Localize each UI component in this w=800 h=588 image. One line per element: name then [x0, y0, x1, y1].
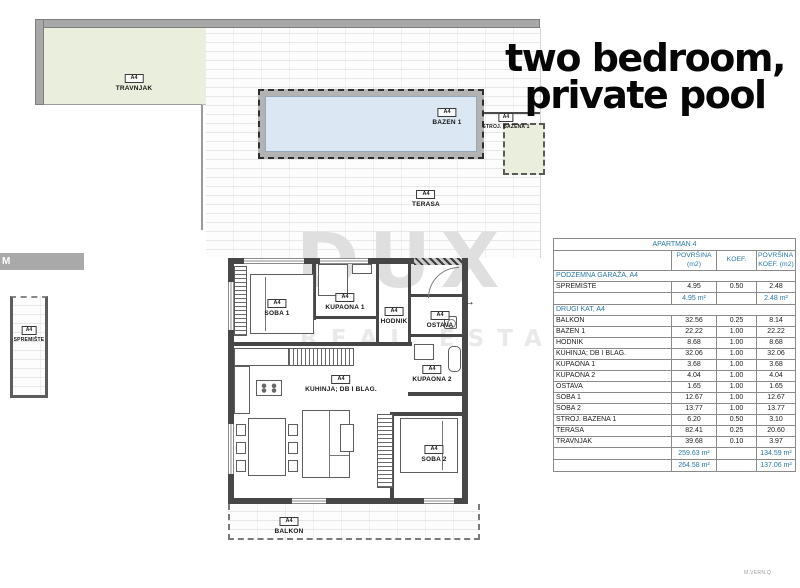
table-row: SPREMIŠTE 4.95 0.50 2.48: [554, 282, 796, 293]
unit-tag: A4: [422, 365, 441, 374]
lawn-bottom-line: [44, 104, 202, 105]
wardrobe-soba1: [234, 266, 247, 336]
table-row: KUPAONA 2 4.04 1.00 4.04: [554, 371, 796, 382]
entry-arrow-icon: →: [464, 297, 475, 307]
apartment-area-table: APARTMAN 4 POVRŠINA (m2) KOEF. POVRŠINA …: [553, 238, 796, 472]
col-header-area: POVRŠINA (m2): [672, 251, 717, 271]
chair: [236, 442, 246, 454]
side-band-label: M: [2, 256, 10, 267]
site-boundary-wall-top: [35, 19, 540, 28]
pool-machinery-area: [503, 123, 545, 175]
table-header-row: POVRŠINA (m2) KOEF. POVRŠINA S KOEF. (m2…: [554, 251, 796, 271]
corner-note: M.VERN.Q: [744, 570, 771, 576]
col-header-koef: KOEF.: [717, 251, 757, 271]
unit-tag: A4: [279, 517, 298, 526]
coffee-table: [340, 424, 354, 452]
unit-tag: A4: [124, 74, 143, 83]
wall-ostava-bottom: [408, 334, 464, 337]
table-row: SOBA 2 13.77 1.00 13.77: [554, 404, 796, 415]
section-header-row: DRUGI KAT, A4: [554, 305, 796, 316]
dining-table: [248, 418, 286, 476]
table-row: KUPAONA 1 3.68 1.00 3.68: [554, 360, 796, 371]
room-label-kuhinja: A4 KUHINJA; DB I BLAG.: [305, 367, 377, 393]
cooktop-burners: [259, 383, 279, 393]
unit-tag: A4: [424, 445, 443, 454]
chair: [288, 442, 298, 454]
unit-tag: A4: [335, 293, 354, 302]
unit-tag: A4: [499, 113, 513, 122]
chair: [236, 460, 246, 472]
page-title: two bedroom, private pool: [492, 40, 798, 114]
balcony-area: [228, 504, 480, 540]
area-table: APARTMAN 4 POVRŠINA (m2) KOEF. POVRŠINA …: [553, 238, 796, 472]
kitchen-counter-left: [234, 366, 250, 414]
section-header-row: PODZEMNA GARAŽA, A4: [554, 271, 796, 282]
wardrobe-hatch: [377, 414, 393, 488]
chair: [288, 424, 298, 436]
table-row: HODNIK 8.68 1.00 8.68: [554, 338, 796, 349]
table-row: KUHINJA; DB I BLAG. 32.06 1.00 32.06: [554, 349, 796, 360]
unit-tag: A4: [416, 190, 435, 199]
storage-room-plan: [10, 296, 48, 398]
garden-edge-line: [201, 105, 203, 230]
room-label-soba2: A4 SOBA 2: [421, 437, 446, 463]
unit-tag: A4: [384, 307, 403, 316]
room-label-ostava: A4 OSTAVA: [427, 303, 454, 329]
room-label-balkon: A4 BALKON: [274, 509, 303, 535]
subtotal-row: 259.63 m² 134.59 m²: [554, 448, 796, 460]
page-title-line2: private pool: [492, 77, 798, 114]
wall-kupaona1-bottom: [312, 316, 379, 319]
wall-soba2-top: [390, 412, 464, 416]
unit-tag: A4: [267, 299, 286, 308]
wall-top-hatched: [414, 258, 468, 265]
total-row: 264.58 m² 137.06 m²: [554, 460, 796, 472]
room-label-bazen1: A4 BAZEN 1: [432, 100, 461, 126]
room-label-travnjak: A4 TRAVNJAK: [116, 66, 153, 92]
subtotal-row: 4.95 m² 2.48 m²: [554, 293, 796, 305]
unit-tag: A4: [22, 326, 36, 335]
sofa-seat: [303, 411, 330, 477]
side-band: M: [0, 253, 84, 270]
unit-tag: A4: [437, 108, 456, 117]
sofa-chaise: [329, 455, 349, 478]
table-row: STROJ. BAZENA 1 6.20 0.50 3.10: [554, 415, 796, 426]
wall-living-top: [232, 342, 412, 346]
table-title: APARTMAN 4: [554, 239, 796, 251]
room-label-terasa: A4 TERASA: [412, 182, 440, 208]
table-row: SOBA 1 12.67 1.00 12.67: [554, 393, 796, 404]
room-label-kupaona1: A4 KUPAONA 1: [325, 285, 364, 311]
floorplan-page: DUX REAL ESTATE M →: [0, 0, 800, 588]
table-row: BALKON 32.56 0.25 8.14: [554, 316, 796, 327]
cooktop: [256, 380, 282, 396]
room-label-soba1: A4 SOBA 1: [264, 291, 289, 317]
chair: [288, 460, 298, 472]
kitchen-cabinets-hatch: [288, 348, 354, 366]
unit-tag: A4: [430, 311, 449, 320]
table-row: BAZEN 1 22.22 1.00 22.22: [554, 327, 796, 338]
room-label-hodnik: A4 HODNIK: [381, 299, 408, 325]
site-boundary-wall-left: [35, 19, 44, 105]
table-title-row: APARTMAN 4: [554, 239, 796, 251]
window-top-1: [244, 258, 304, 264]
window-left-2: [228, 424, 234, 474]
col-header-area-koef: POVRŠINA S KOEF. (m2): [757, 251, 796, 271]
chair: [236, 424, 246, 436]
wall-kupaona2-bottom: [408, 392, 464, 396]
unit-tag: A4: [331, 375, 350, 384]
table-row: TERASA 82.41 0.25 20.60: [554, 426, 796, 437]
table-row: TRAVNJAK 39.68 0.10 3.97: [554, 437, 796, 448]
wall-hodnik-left: [376, 262, 379, 346]
sink-kupaona1: [352, 264, 372, 274]
page-title-line1: two bedroom,: [492, 40, 798, 77]
room-label-kupaona2: A4 KUPAONA 2: [412, 357, 451, 383]
table-row: OSTAVA 1.65 1.00 1.65: [554, 382, 796, 393]
room-label-spremiste: A4 SPREMIŠTE: [14, 318, 45, 343]
